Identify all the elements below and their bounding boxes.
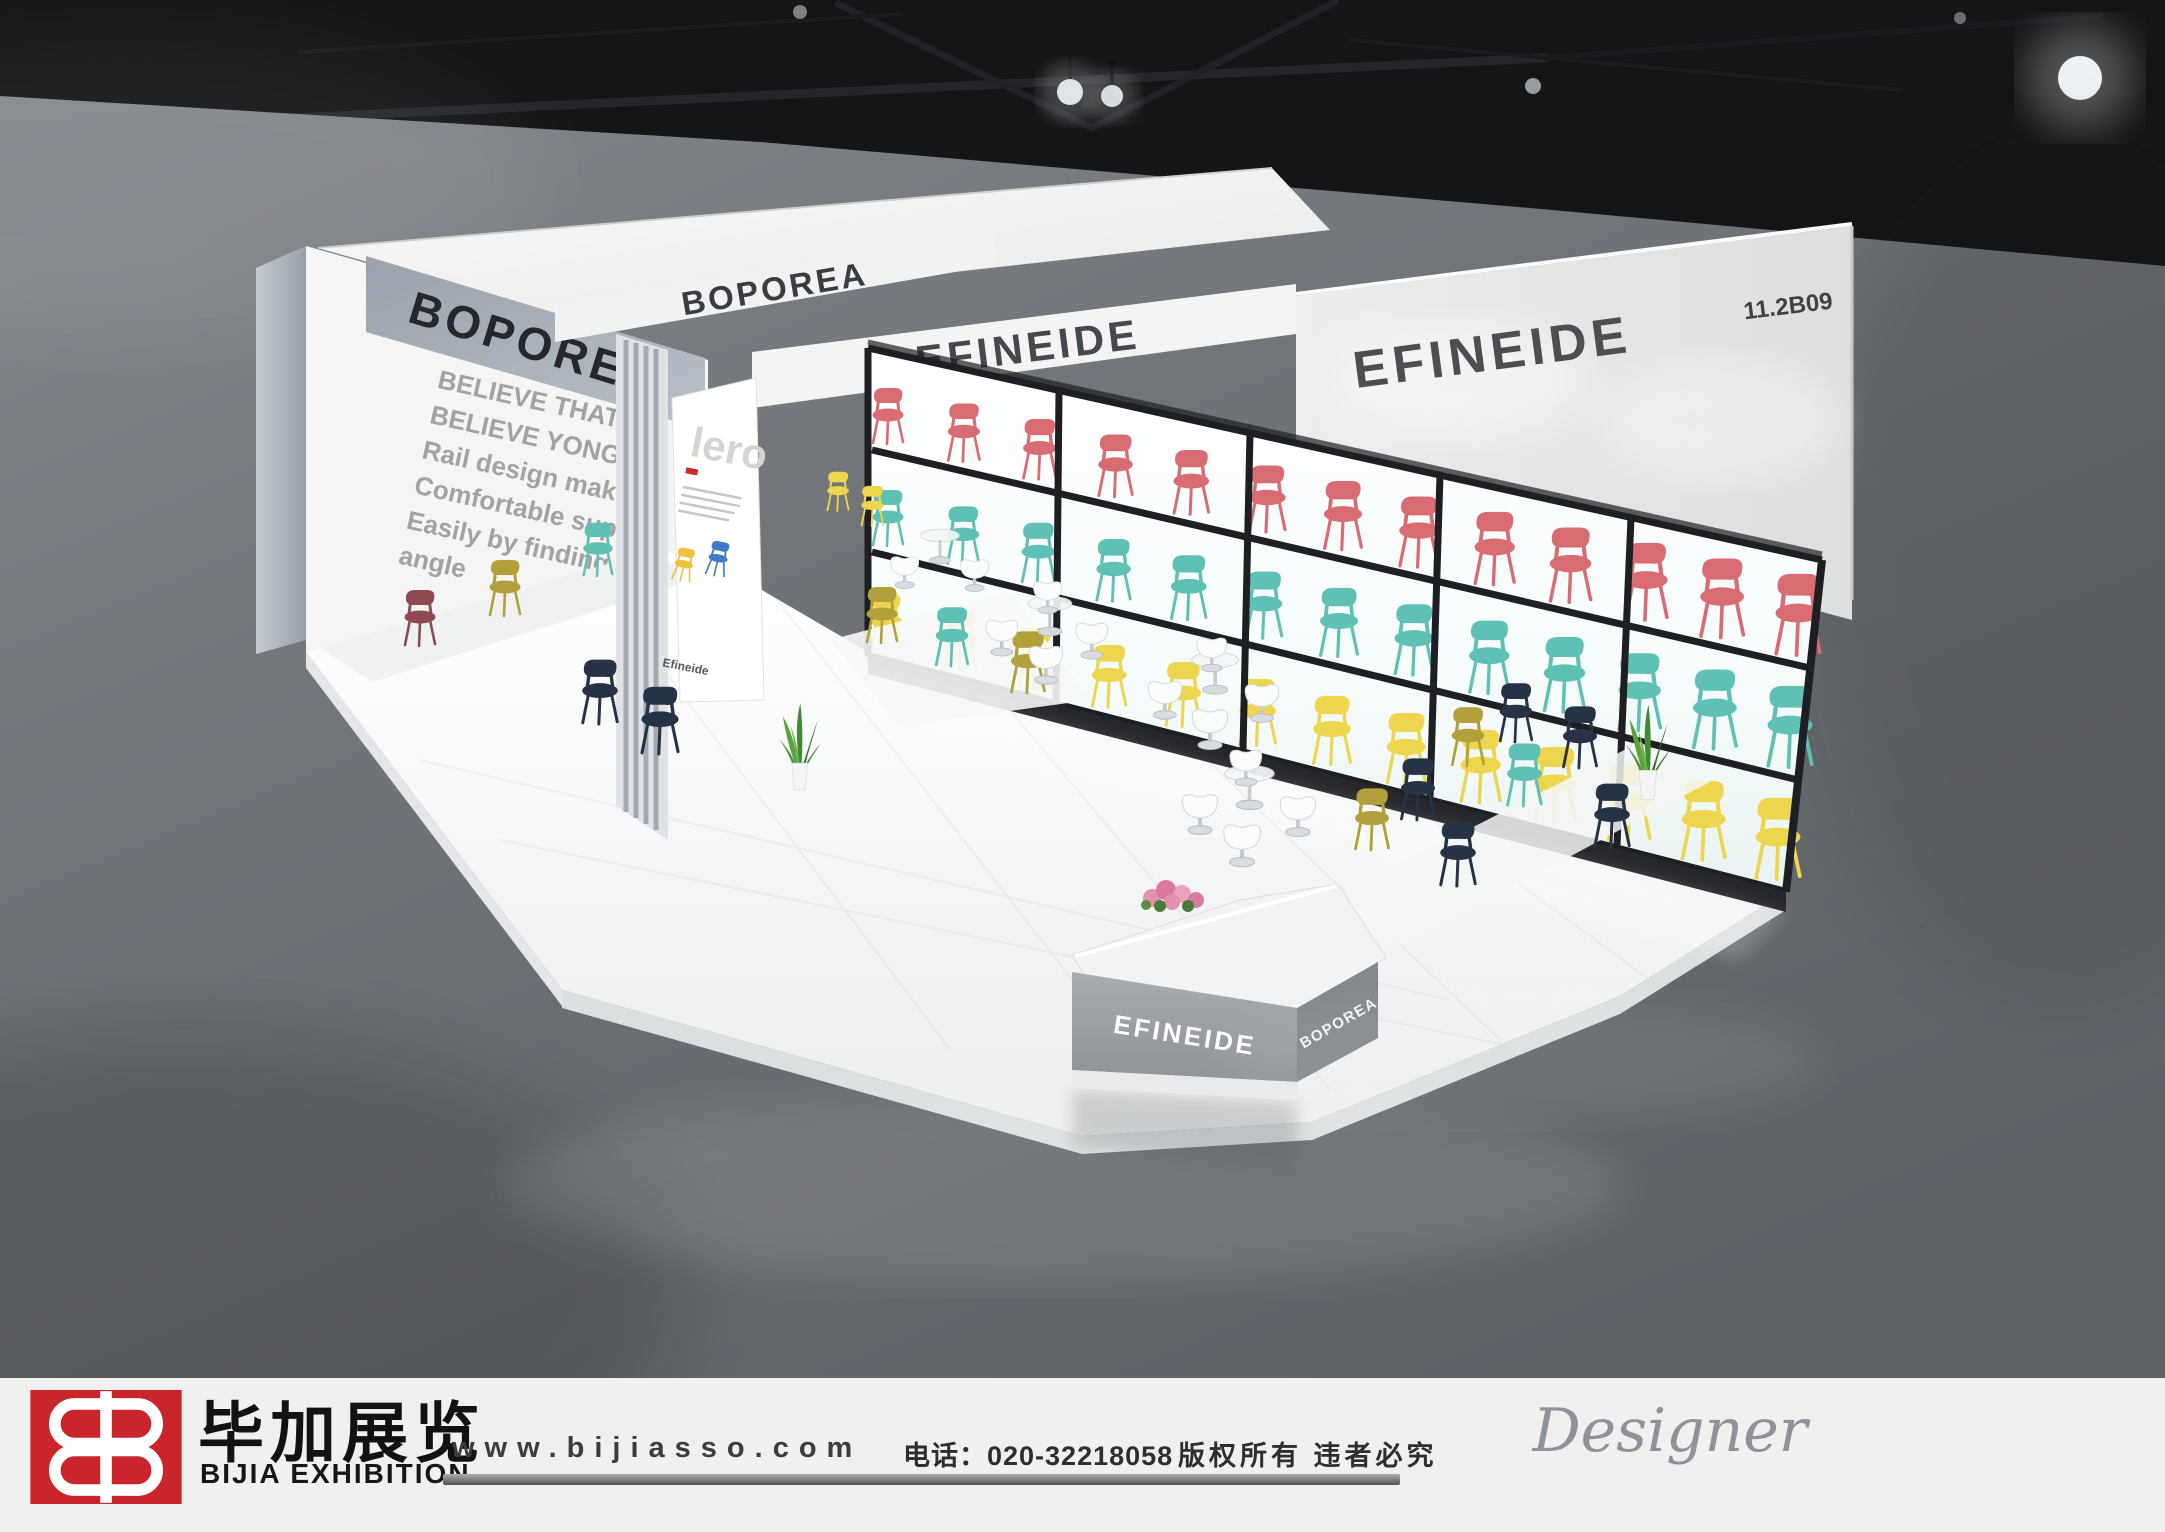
booth-floor-reflection xyxy=(1220,1000,1820,1120)
footer-bar: 毕加展览 BIJIA EXHIBITION www.bijiasso.com 电… xyxy=(0,1378,2165,1532)
website-text: www.bijiasso.com xyxy=(452,1432,862,1465)
booth-3d-scene: BELIEVE THAT BELIEVE YONGF Rail design m… xyxy=(0,0,2165,1378)
designer-signature: Designer xyxy=(1500,1396,1840,1466)
booth-floor-reflection xyxy=(500,1090,1620,1280)
wall-wash-light xyxy=(1600,360,1840,480)
left-outer-wall xyxy=(256,246,306,654)
company-name-en: BIJIA EXHIBITION xyxy=(200,1458,471,1490)
exhibition-render: BELIEVE THAT BELIEVE YONGF Rail design m… xyxy=(0,0,2165,1532)
copyright-text: 版权所有 违者必究 xyxy=(1178,1434,1438,1473)
footer-divider xyxy=(443,1474,1400,1485)
bijia-logo xyxy=(30,1390,182,1504)
phone-text: 电话：020-32218058 xyxy=(903,1434,1173,1473)
